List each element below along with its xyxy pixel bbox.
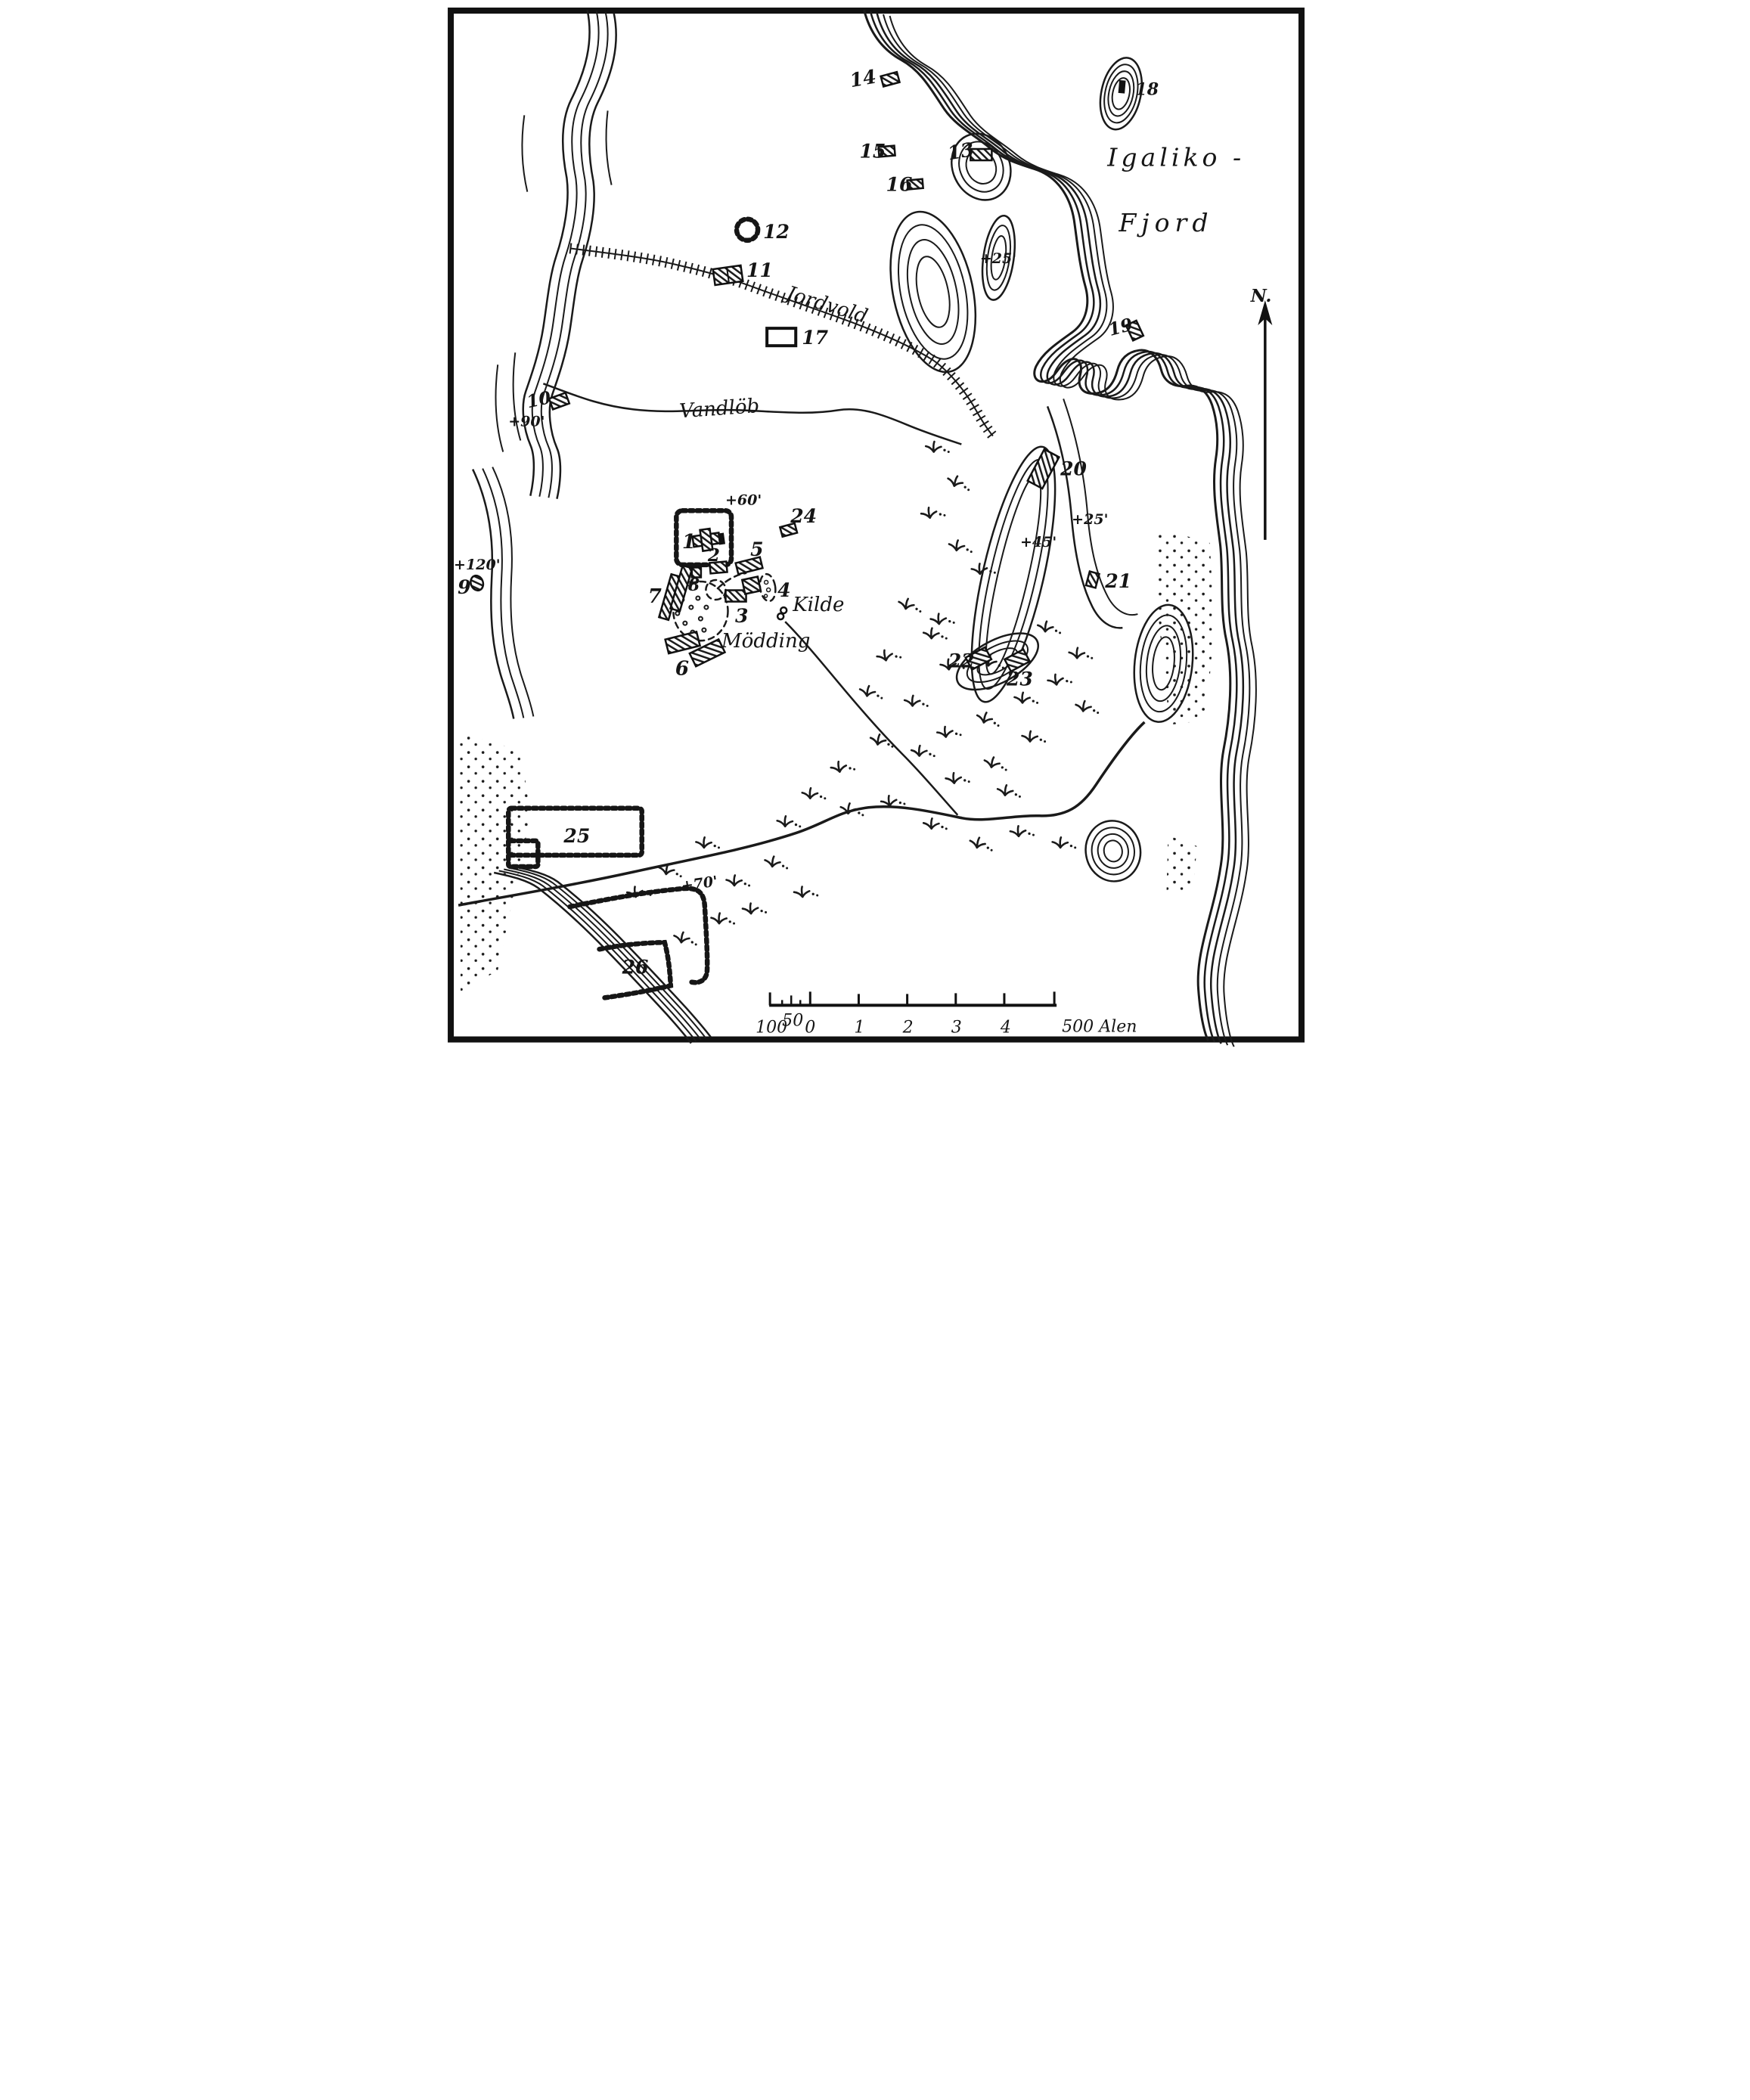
fjord-name-line1: Igaliko - — [1106, 143, 1245, 172]
ruin-17-open — [767, 328, 796, 346]
ruin-label-26: 26 — [622, 955, 649, 978]
elevation-90ft: +90' — [508, 413, 545, 430]
ruin-11 — [713, 265, 743, 285]
ruin-label-23: 23 — [1006, 667, 1033, 690]
scale-tick-3: 3 — [951, 1019, 962, 1038]
scale-tick-0: 0 — [805, 1019, 815, 1038]
ruin-label-13: 13 — [946, 138, 976, 165]
ruin-label-16: 16 — [886, 173, 913, 196]
ruin-label-7: 7 — [648, 585, 662, 608]
ruin-label-24: 24 — [790, 504, 817, 527]
scale-tick-50: 50 — [782, 1012, 803, 1031]
ruin-label-8: 8 — [687, 575, 700, 595]
scale-tick-2: 2 — [902, 1019, 914, 1038]
elevation-120ft: +120' — [454, 557, 501, 573]
elevation-45ft: +45' — [1020, 534, 1057, 551]
scale-unit-label: 500 Alen — [1062, 1018, 1137, 1037]
ruin-label-5: 5 — [750, 538, 763, 560]
elevation-60ft: +60' — [725, 492, 762, 509]
ruin-label-11: 11 — [746, 259, 773, 281]
scale-tick-4: 4 — [1000, 1019, 1011, 1038]
ruin-3 — [725, 591, 746, 602]
ruin-label-12: 12 — [763, 220, 790, 243]
elevation-25ft-valley: +25' — [1072, 511, 1108, 528]
ruin-label-9: 9 — [458, 575, 470, 598]
ruin-label-21: 21 — [1104, 569, 1131, 592]
ruin-label-4: 4 — [777, 579, 790, 601]
ruin-label-25: 25 — [563, 824, 590, 847]
ruin-label-14: 14 — [848, 65, 878, 92]
north-label: N. — [1250, 286, 1272, 306]
modding-label: Mödding — [721, 630, 810, 653]
ruin-label-3: 3 — [735, 604, 748, 627]
ruin-18 — [1119, 80, 1126, 94]
survey-map: Igaliko - Fjord N. Jordvold Vandlöb Kild… — [436, 0, 1314, 1053]
ruin-label-18: 18 — [1135, 79, 1159, 99]
ruin-label-17: 17 — [802, 326, 828, 349]
ruin-label-20: 20 — [1060, 458, 1087, 480]
ruin-label-6: 6 — [675, 657, 689, 680]
ruin-label-22: 22 — [948, 649, 975, 672]
kilde-label: Kilde — [792, 594, 844, 616]
map-page: Igaliko - Fjord N. Jordvold Vandlöb Kild… — [436, 0, 1314, 1053]
fjord-name-line2: Fjord — [1118, 208, 1213, 237]
ruin-label-1: 1 — [682, 531, 696, 554]
elevation-25ft-hill: +25' — [980, 250, 1016, 267]
ruin-label-15: 15 — [859, 140, 886, 163]
scale-tick-1: 1 — [854, 1019, 864, 1038]
ruin-5b — [742, 576, 761, 594]
ruin-label-2: 2 — [707, 545, 720, 566]
